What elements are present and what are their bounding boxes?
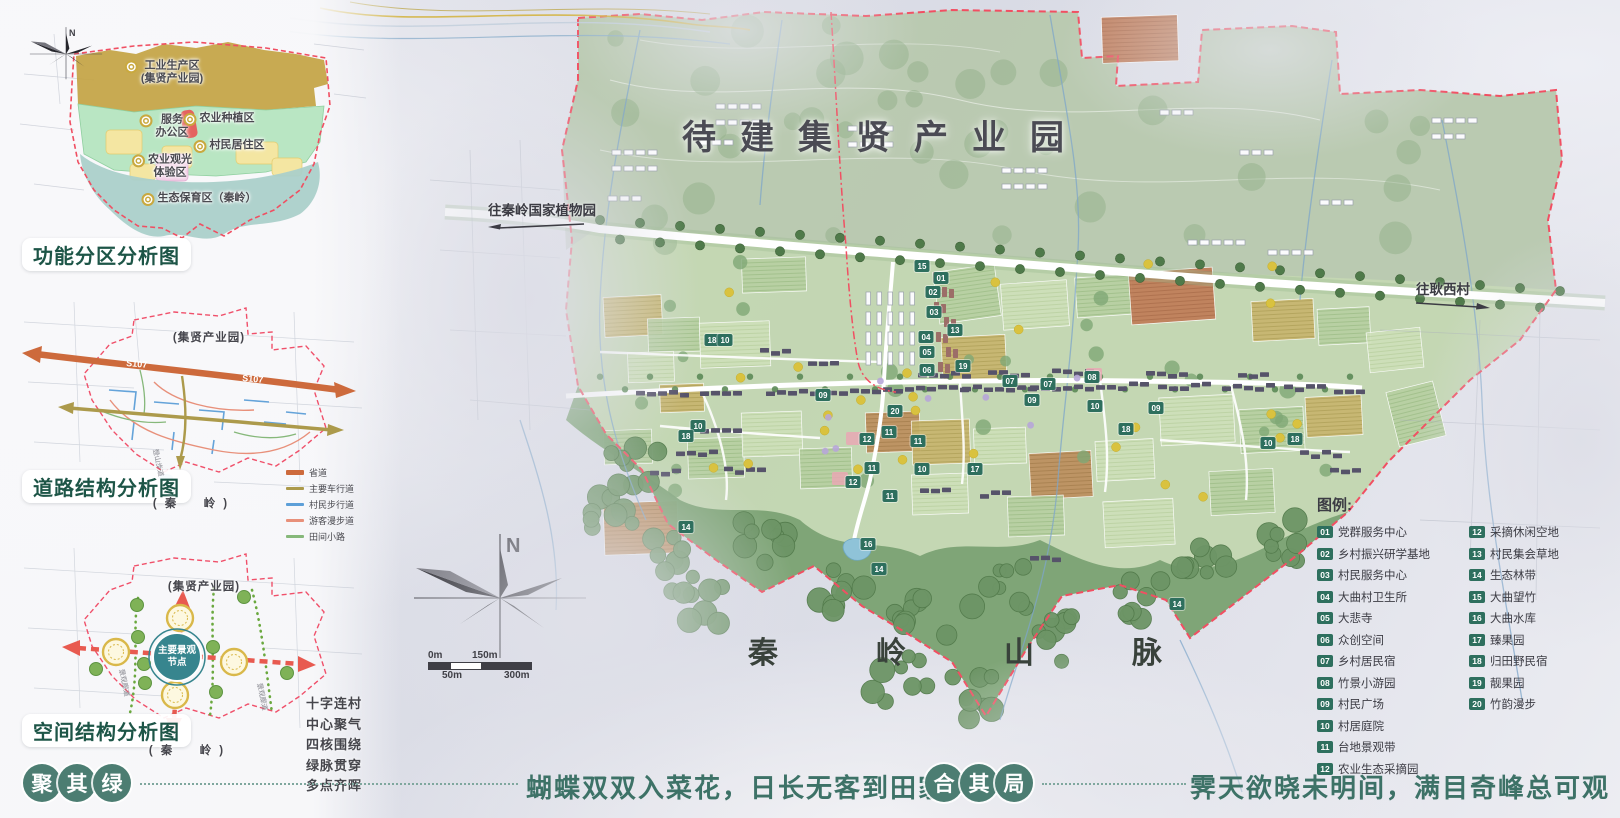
legend-num-chip: 06	[1317, 634, 1333, 646]
zone-label-1: 服务 办公区	[140, 113, 189, 138]
legend-item-06: 06众创空间	[1317, 632, 1447, 648]
legend-item-07: 07乡村居民宿	[1317, 653, 1447, 669]
legend-item-09: 09村民广场	[1317, 696, 1447, 712]
zone-label-text: 农业观光 体验区	[148, 153, 192, 178]
road-map-label-industrial: (集贤产业园)	[173, 329, 245, 345]
legend-title: 图例:	[1317, 494, 1617, 515]
legend-item-label: 靓果园	[1490, 675, 1525, 691]
legend-item-label: 党群服务中心	[1338, 524, 1407, 540]
legend-num-chip: 16	[1469, 612, 1485, 624]
legend-num-chip: 19	[1469, 677, 1485, 689]
legend-item-label: 竹景小游园	[1338, 675, 1396, 691]
route-label-right: 往耿西村	[1416, 278, 1492, 312]
legend-item-17: 17臻果园	[1469, 632, 1599, 648]
zone-label-text: 农业种植区	[200, 112, 255, 125]
badge-char: 局	[995, 764, 1033, 802]
road-legend-label: 主要车行道	[309, 482, 354, 495]
legend-num-chip: 07	[1317, 655, 1333, 667]
badge-char: 绿	[93, 764, 131, 802]
zone-ring-icon	[194, 140, 207, 153]
legend-num-chip: 09	[1317, 698, 1333, 710]
poster: N 待建集贤产业园 秦岭山脉 往秦岭国家植物园 往耿西村 0m150m 50m3…	[0, 0, 1620, 818]
dotted-divider	[140, 783, 518, 785]
legend-item-label: 村民集会草地	[1490, 546, 1559, 562]
road-legend-label: 村民步行道	[309, 498, 354, 511]
legend-item-15: 15大曲望竹	[1469, 589, 1599, 605]
legend-item-label: 臻果园	[1490, 632, 1525, 648]
legend-col-0: 01党群服务中心02乡村振兴研学基地03村民服务中心04大曲村卫生所05大悲寺0…	[1317, 524, 1447, 777]
road-legend-label: 省道	[309, 466, 327, 479]
road-legend-swatch	[286, 470, 304, 475]
legend-num-chip: 04	[1317, 591, 1333, 603]
legend-num-chip: 12	[1469, 526, 1485, 538]
zone-ring-icon	[125, 60, 138, 73]
badge-char: 其	[960, 764, 998, 802]
bottom-area-label: 秦岭山脉	[748, 628, 1260, 672]
footer: 聚其绿 蝴蝶双双入菜花，日长无客到田家 合其局 霁天欲晓未明间，满目奇峰总可观	[0, 742, 1620, 818]
legend-item-label: 归田野民宿	[1490, 653, 1548, 669]
route-arrow-left-icon	[488, 221, 588, 233]
legend-item-02: 02乡村振兴研学基地	[1317, 546, 1447, 562]
legend-item-19: 19靓果园	[1469, 675, 1599, 691]
center-node-label: 主要景观节点	[154, 645, 200, 669]
legend-item-label: 竹韵漫步	[1490, 696, 1536, 712]
zone-ring-icon	[140, 114, 153, 127]
panel-spatial-structure: 主要景观节点 空间结构分析图 (集贤产业园) (秦 岭) 景观廊道 景观廊道 十…	[14, 518, 366, 778]
legend-item-label: 大曲水库	[1490, 610, 1536, 626]
compass-icon: N	[414, 534, 586, 658]
legend-col-1: 12采摘休闲空地13村民集会草地14生态林带15大曲望竹16大曲水库17臻果园1…	[1469, 524, 1599, 777]
scale-bar: 0m150m 50m300m	[428, 650, 538, 682]
legend-item-label: 大曲望竹	[1490, 589, 1536, 605]
compass-n: N	[506, 535, 520, 557]
legend-num-chip: 15	[1469, 591, 1485, 603]
zone-label-3: 村民居住区	[194, 139, 265, 153]
route-label-left: 往秦岭国家植物园	[488, 199, 596, 233]
legend-item-label: 乡村居民宿	[1338, 653, 1396, 669]
legend-item-05: 05大悲寺	[1317, 610, 1447, 626]
slogan-line: 中心聚气	[306, 715, 362, 736]
legend-num-chip: 05	[1317, 612, 1333, 624]
legend-num-chip: 17	[1469, 634, 1485, 646]
legend-item-04: 04大曲村卫生所	[1317, 589, 1447, 605]
legend-item-16: 16大曲水库	[1469, 610, 1599, 626]
zone-ring-icon	[132, 154, 145, 167]
zone-label-2: 农业种植区	[184, 112, 255, 126]
badge-char: 聚	[23, 764, 61, 802]
legend-item-14: 14生态林带	[1469, 567, 1599, 583]
panel-title-functional-zoning: 功能分区分析图	[22, 238, 191, 271]
svg-text:S107: S107	[126, 358, 148, 370]
legend-item-08: 08竹景小游园	[1317, 675, 1447, 691]
zone-label-text: 生态保育区（秦岭）	[158, 192, 257, 205]
legend-num-chip: 14	[1469, 569, 1485, 581]
badge-he-qi-ju: 合其局	[928, 764, 1033, 802]
legend-item-label: 采摘休闲空地	[1490, 524, 1559, 540]
road-legend-item-0: 省道	[286, 466, 354, 479]
zone-ring-icon	[142, 193, 155, 206]
legend-item-label: 生态林带	[1490, 567, 1536, 583]
top-area-label: 待建集贤产业园	[682, 110, 1088, 159]
zone-label-0: 工业生产区 (集贤产业园)	[125, 59, 203, 84]
functional-zoning-map: N	[14, 14, 366, 246]
route-arrow-right-icon	[1416, 300, 1492, 312]
legend-num-chip: 02	[1317, 548, 1333, 560]
zone-label-5: 生态保育区（秦岭）	[142, 192, 257, 206]
legend-item-10: 10村居庭院	[1317, 718, 1447, 734]
legend-item-label: 村民广场	[1338, 696, 1384, 712]
road-legend-swatch	[286, 503, 304, 506]
legend-item-label: 大曲村卫生所	[1338, 589, 1407, 605]
zone-label-text: 工业生产区 (集贤产业园)	[141, 59, 203, 84]
road-legend-swatch	[286, 487, 304, 490]
zone-ring-icon	[184, 113, 197, 126]
zone-label-text: 村民居住区	[210, 139, 265, 152]
legend-num-chip: 10	[1317, 720, 1333, 732]
legend-item-12: 12采摘休闲空地	[1469, 524, 1599, 540]
legend-num-chip: 01	[1317, 526, 1333, 538]
poem-right: 霁天欲晓未明间，满目奇峰总可观	[1190, 768, 1610, 805]
svg-text:N: N	[69, 28, 76, 38]
panel-road-structure: S107 S107 道路结构分析图 (集贤产业园) (秦 岭) 登山步道 省道主…	[14, 282, 366, 520]
badge-char: 合	[925, 764, 963, 802]
legend-item-label: 乡村振兴研学基地	[1338, 546, 1430, 562]
legend-item-label: 大悲寺	[1338, 610, 1373, 626]
legend-item-20: 20竹韵漫步	[1469, 696, 1599, 712]
badge-ju-qi-lv: 聚其绿	[26, 764, 131, 802]
spatial-map-label-industrial: (集贤产业园)	[168, 578, 240, 594]
legend-item-label: 村居庭院	[1338, 718, 1384, 734]
badge-char: 其	[58, 764, 96, 802]
legend-item-01: 01党群服务中心	[1317, 524, 1447, 540]
legend-item-03: 03村民服务中心	[1317, 567, 1447, 583]
scale-bar-segments	[428, 662, 532, 670]
poem-left: 蝴蝶双双入菜花，日长无客到田家	[526, 768, 946, 805]
legend-num-chip: 13	[1469, 548, 1485, 560]
legend-item-13: 13村民集会草地	[1469, 546, 1599, 562]
panel-functional-zoning: N 功能分区分析图 工业生产区 (集贤产业园)服务 办公区农业种植区村民居住区农…	[14, 14, 366, 268]
road-map-label-qinling: (秦 岭)	[153, 495, 235, 511]
slogan-line: 十字连村	[306, 694, 362, 715]
legend-item-label: 众创空间	[1338, 632, 1384, 648]
zone-label-4: 农业观光 体验区	[132, 153, 192, 178]
map-legend: 图例: 01党群服务中心02乡村振兴研学基地03村民服务中心04大曲村卫生所05…	[1317, 494, 1617, 777]
legend-num-chip: 18	[1469, 655, 1485, 667]
legend-item-18: 18归田野民宿	[1469, 653, 1599, 669]
legend-num-chip: 08	[1317, 677, 1333, 689]
legend-item-label: 村民服务中心	[1338, 567, 1407, 583]
svg-text:S107: S107	[242, 373, 264, 385]
sidebar: N 功能分区分析图 工业生产区 (集贤产业园)服务 办公区农业种植区村民居住区农…	[0, 0, 402, 818]
legend-num-chip: 20	[1469, 698, 1485, 710]
dotted-divider	[1042, 783, 1186, 785]
road-legend-item-1: 主要车行道	[286, 482, 354, 495]
legend-num-chip: 03	[1317, 569, 1333, 581]
road-legend-item-2: 村民步行道	[286, 498, 354, 511]
